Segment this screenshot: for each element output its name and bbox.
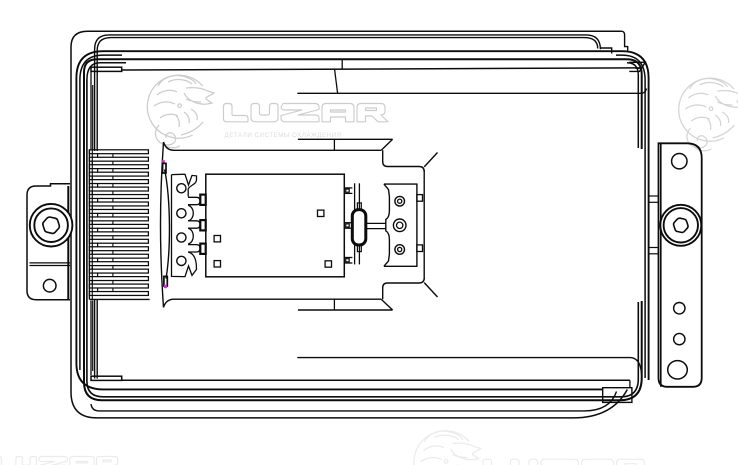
svg-text:ДЕТАЛИ СИСТЕМЫ ОХЛАЖДЕНИЯ: ДЕТАЛИ СИСТЕМЫ ОХЛАЖДЕНИЯ	[225, 132, 342, 139]
